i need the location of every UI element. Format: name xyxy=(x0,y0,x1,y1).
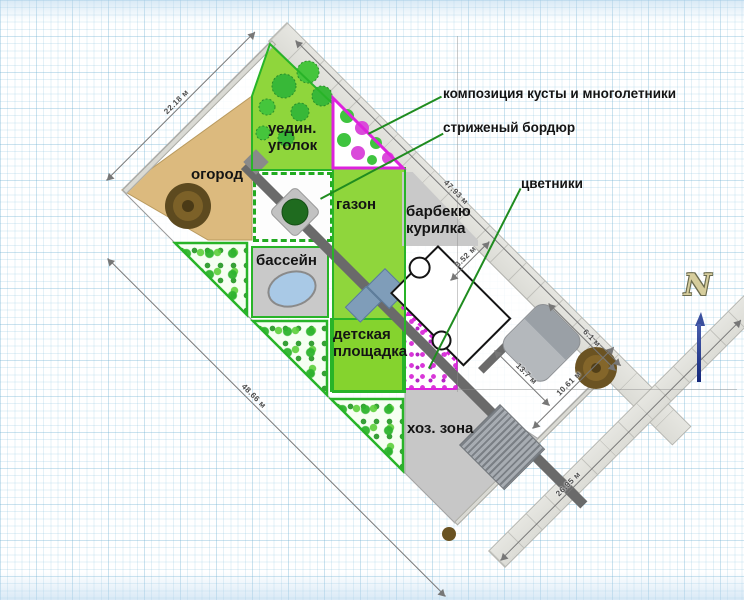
bush-icon xyxy=(367,155,377,165)
label-uyedin: уедин. уголок xyxy=(268,120,317,155)
composition-bushes xyxy=(337,109,394,165)
small-tree-icon xyxy=(442,527,456,541)
tree-icon xyxy=(182,200,194,212)
north-label: N xyxy=(684,268,711,303)
shrub-triangle-2-outline xyxy=(253,321,327,395)
label-uyedin-line2: уголок xyxy=(268,137,317,154)
tree-icon xyxy=(272,74,296,98)
tree-icon xyxy=(259,99,275,115)
annotation-flowerbeds: цветники xyxy=(521,176,583,191)
north-arrow-shaft-icon xyxy=(697,324,701,382)
bush-icon xyxy=(337,133,351,147)
shrub-triangle-1-outline xyxy=(175,243,247,315)
label-playground: детская площадка xyxy=(333,326,407,361)
central-tree xyxy=(270,187,321,238)
bush-icon xyxy=(351,146,365,160)
label-playground-line1: детская xyxy=(333,326,407,343)
construction-line-horizontal xyxy=(455,389,737,390)
label-utility: хоз. зона xyxy=(407,420,473,437)
tree-icon xyxy=(291,103,309,121)
shrub-triangle-3-outline xyxy=(331,399,403,471)
label-uyedin-line1: уедин. xyxy=(268,120,317,137)
compass: N xyxy=(680,268,720,388)
tree-icon xyxy=(312,86,332,106)
ogorod-tree xyxy=(165,183,211,229)
label-pool: бассейн xyxy=(256,252,317,269)
label-ogorod: огород xyxy=(191,166,243,183)
label-barbecue-line2: курилка xyxy=(406,220,471,237)
annotation-trimmed-border: стриженый бордюр xyxy=(443,120,575,135)
label-playground-line2: площадка xyxy=(333,343,407,360)
tree-icon xyxy=(282,199,308,225)
label-barbecue-line1: барбекю xyxy=(406,203,471,220)
plan-stage: 22.18 м 47.93 м 48.66 м 26.95 м 10.61 м … xyxy=(0,0,744,600)
label-gazon: газон xyxy=(336,196,376,213)
label-barbecue: барбекю курилка xyxy=(406,203,471,238)
pool-icon xyxy=(264,266,320,312)
annotation-composition: композиция кусты и многолетники xyxy=(443,86,676,101)
